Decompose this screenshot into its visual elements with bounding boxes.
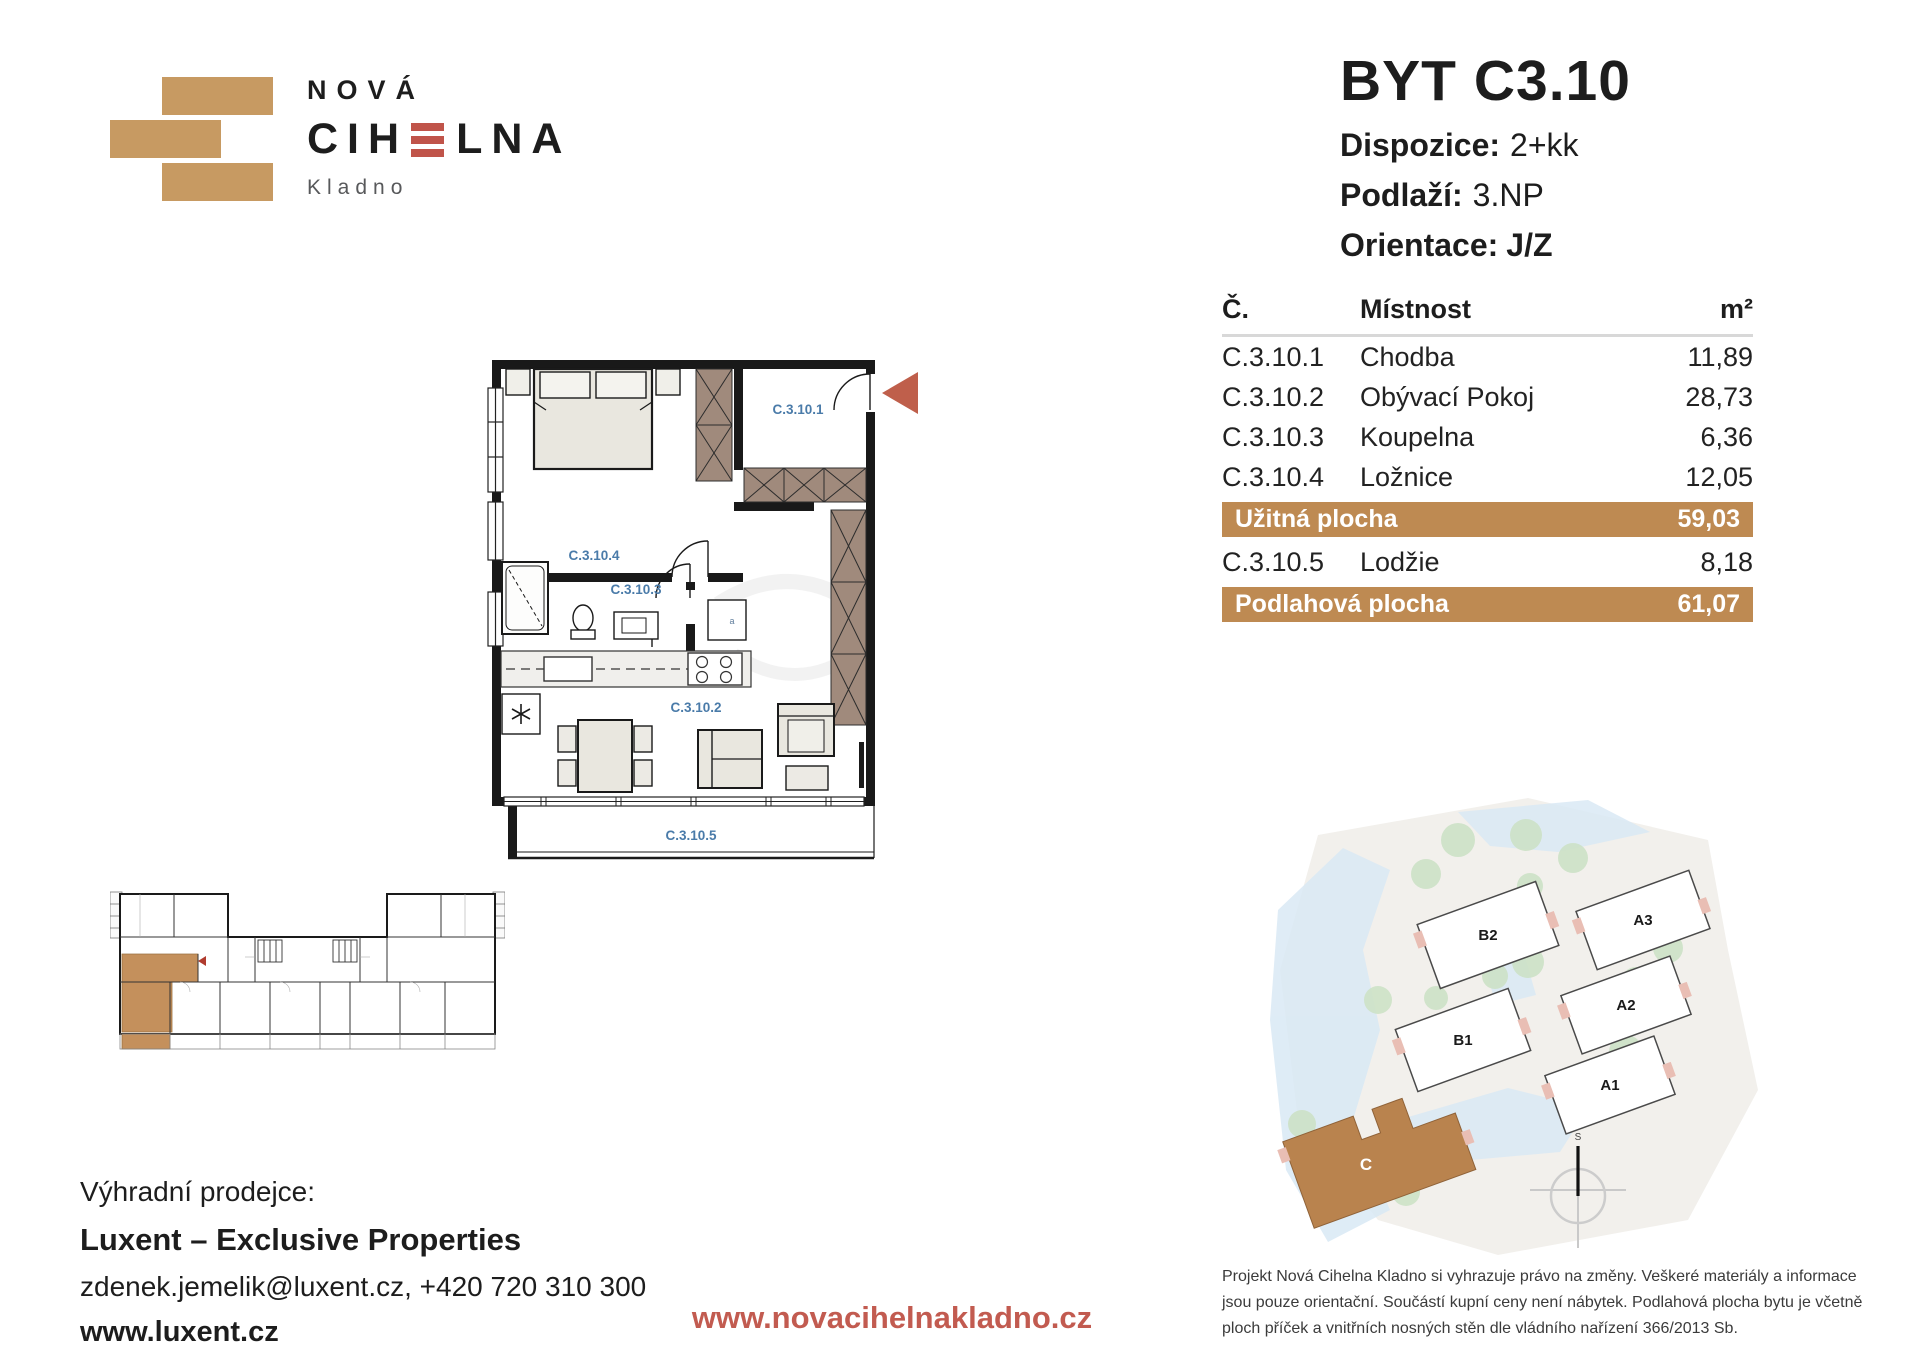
logo-lna: LNA [456, 115, 571, 164]
seller-intro: Výhradní prodejce: [80, 1176, 646, 1208]
project-website-link[interactable]: www.novacihelnakladno.cz [622, 1300, 1162, 1336]
floor-area-value: 61,07 [1630, 590, 1740, 619]
nightstand [506, 369, 530, 395]
table-row: C.3.10.1 Chodba 11,89 [1222, 337, 1753, 377]
armchair [778, 704, 834, 756]
tv-board [859, 742, 864, 788]
floor-overview-plan [110, 882, 505, 1077]
toilet [571, 605, 595, 639]
brick-middle [110, 120, 221, 158]
building-a3-label: A3 [1633, 912, 1652, 929]
living-label: C.3.10.2 [670, 700, 721, 715]
loggia-window-band [504, 797, 864, 806]
floor-area-bar: Podlahová plocha 61,07 [1222, 587, 1753, 622]
dining-set [558, 720, 652, 792]
kitchen-sink [544, 657, 592, 681]
chair [558, 726, 576, 752]
chair [558, 760, 576, 786]
sofa [698, 730, 762, 788]
chair [634, 726, 652, 752]
row-area: 11,89 [1643, 342, 1753, 373]
spec-orientace: Orientace:J/Z [1340, 227, 1631, 264]
row-area: 6,36 [1643, 422, 1753, 453]
table-row: C.3.10.4 Ložnice 12,05 [1222, 457, 1753, 497]
corridor-wardrobe [831, 510, 866, 725]
kitchen-counter [501, 651, 751, 687]
row-name: Koupelna [1360, 422, 1643, 453]
usable-area-bar: Užitná plocha 59,03 [1222, 502, 1753, 537]
col-code: Č. [1222, 294, 1360, 325]
shower [502, 562, 548, 634]
row-code: C.3.10.3 [1222, 422, 1360, 453]
table-header: Č. Místnost m² [1222, 294, 1753, 332]
logo-e-bars-icon [411, 123, 444, 157]
loggia-label: C.3.10.5 [665, 828, 717, 843]
logo: NOVÁ CIH LNA Kladno [110, 55, 630, 215]
compass-north-label: S [1575, 1132, 1582, 1143]
col-area: m² [1643, 294, 1753, 325]
floor-plan: a [486, 352, 926, 872]
building-b2-label: B2 [1478, 927, 1497, 944]
flue-symbol-icon [502, 694, 540, 734]
pillow [596, 372, 646, 398]
seller-block: Výhradní prodejce: Luxent – Exclusive Pr… [80, 1176, 646, 1349]
stove [688, 653, 742, 685]
dining-table [578, 720, 632, 792]
seller-name: Luxent – Exclusive Properties [80, 1222, 646, 1258]
logo-line-cihelna: CIH LNA [307, 115, 571, 164]
brick-bottom [162, 163, 273, 201]
spec-orientace-value: J/Z [1506, 227, 1552, 263]
entry-arrow-icon [882, 372, 918, 414]
spec-podlazi-label: Podlaží: [1340, 177, 1463, 213]
seller-contact-link[interactable]: zdenek.jemelik@luxent.cz, +420 720 310 3… [80, 1271, 646, 1303]
hall-label: C.3.10.1 [772, 402, 824, 417]
spec-dispozice: Dispozice:2+kk [1340, 127, 1631, 164]
chair [634, 760, 652, 786]
usable-area-value: 59,03 [1630, 505, 1740, 534]
row-area: 8,18 [1643, 547, 1753, 578]
site-plan: B2 B1 A3 A2 A1 C S [1258, 790, 1763, 1265]
row-code: C.3.10.1 [1222, 342, 1360, 373]
table-row: C.3.10.3 Koupelna 6,36 [1222, 417, 1753, 457]
unit-header: BYT C3.10 Dispozice:2+kk Podlaží:3.NP Or… [1340, 48, 1631, 264]
bedroom-label: C.3.10.4 [568, 548, 620, 563]
disclaimer-text: Projekt Nová Cihelna Kladno si vyhrazuje… [1222, 1264, 1872, 1342]
logo-text: NOVÁ CIH LNA Kladno [307, 75, 571, 200]
washer-label: a [729, 616, 734, 626]
logo-cih: CIH [307, 115, 408, 164]
row-name: Chodba [1360, 342, 1643, 373]
building-b1-label: B1 [1453, 1032, 1472, 1049]
spec-orientace-label: Orientace: [1340, 227, 1498, 263]
row-code: C.3.10.2 [1222, 382, 1360, 413]
spec-podlazi-value: 3.NP [1473, 177, 1544, 213]
row-name: Ložnice [1360, 462, 1643, 493]
row-name: Lodžie [1360, 547, 1643, 578]
building-a1-label: A1 [1600, 1077, 1619, 1094]
unit-title: BYT C3.10 [1340, 48, 1631, 114]
table-row: C.3.10.2 Obývací Pokoj 28,73 [1222, 377, 1753, 417]
pillow [540, 372, 590, 398]
table-row: C.3.10.5 Lodžie 8,18 [1222, 542, 1753, 582]
col-room: Místnost [1360, 294, 1643, 325]
building-a2-label: A2 [1616, 997, 1635, 1014]
usable-area-label: Užitná plocha [1235, 505, 1630, 534]
window [488, 388, 503, 646]
wardrobe [696, 369, 732, 481]
spec-podlazi: Podlaží:3.NP [1340, 177, 1631, 214]
bed [506, 369, 680, 469]
highlighted-balcony [122, 1034, 170, 1049]
brick-top [162, 77, 273, 115]
room-table: Č. Místnost m² C.3.10.1 Chodba 11,89 C.3… [1222, 294, 1753, 627]
flyer-page: NOVÁ CIH LNA Kladno BYT C3.10 Dispozice:… [0, 0, 1920, 1353]
logo-line-nova: NOVÁ [307, 75, 571, 106]
logo-city: Kladno [307, 176, 571, 200]
spec-dispozice-label: Dispozice: [1340, 127, 1500, 163]
brick-logo-icon [110, 77, 275, 202]
washer [708, 600, 746, 640]
row-code: C.3.10.4 [1222, 462, 1360, 493]
bath-label: C.3.10.3 [610, 582, 662, 597]
hall-wardrobe [744, 468, 866, 502]
row-area: 28,73 [1643, 382, 1753, 413]
row-code: C.3.10.5 [1222, 547, 1360, 578]
floor-area-label: Podlahová plocha [1235, 590, 1630, 619]
building-c-label: C [1360, 1155, 1372, 1174]
nightstand [656, 369, 680, 395]
row-area: 12,05 [1643, 462, 1753, 493]
seller-website-link[interactable]: www.luxent.cz [80, 1316, 646, 1349]
spec-dispozice-value: 2+kk [1510, 127, 1578, 163]
row-name: Obývací Pokoj [1360, 382, 1643, 413]
armchair-seat [788, 720, 824, 752]
side-table [786, 766, 828, 790]
sink [614, 612, 658, 647]
